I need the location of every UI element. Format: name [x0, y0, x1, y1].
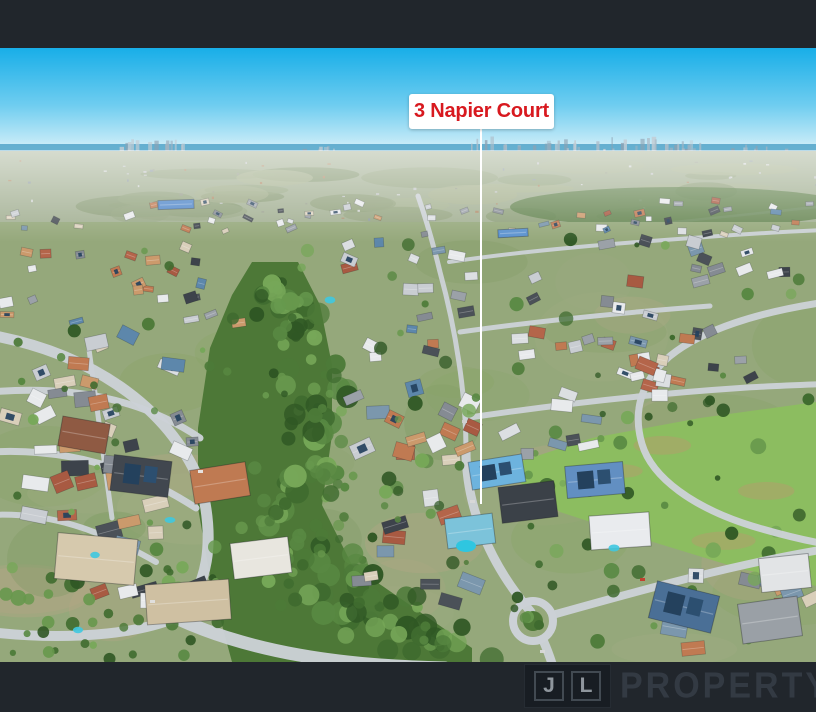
- property-marker-text: 3 Napier Court: [414, 100, 549, 123]
- agency-watermark: J L PROPERTY: [524, 663, 816, 709]
- agency-logo-letter-j: J: [534, 671, 564, 701]
- letterbox-top-bar: [0, 0, 816, 48]
- house-roof: [758, 553, 811, 592]
- house-roof: [589, 512, 651, 550]
- house-roof: [54, 533, 138, 586]
- aerial-photo: [0, 0, 816, 712]
- house-roof: [565, 462, 626, 499]
- property-marker-label: 3 Napier Court: [409, 94, 554, 129]
- agency-logo-word: PROPERTY: [620, 666, 816, 707]
- agency-logo-mark: J L: [524, 664, 611, 708]
- house-roof: [738, 596, 803, 644]
- house-roof: [230, 537, 292, 580]
- marker-pointer-line: [480, 129, 482, 504]
- subject-property-roof: [498, 481, 558, 524]
- agency-logo-letter-l: L: [571, 671, 601, 701]
- house-roof: [145, 579, 232, 625]
- house-roof: [110, 455, 172, 498]
